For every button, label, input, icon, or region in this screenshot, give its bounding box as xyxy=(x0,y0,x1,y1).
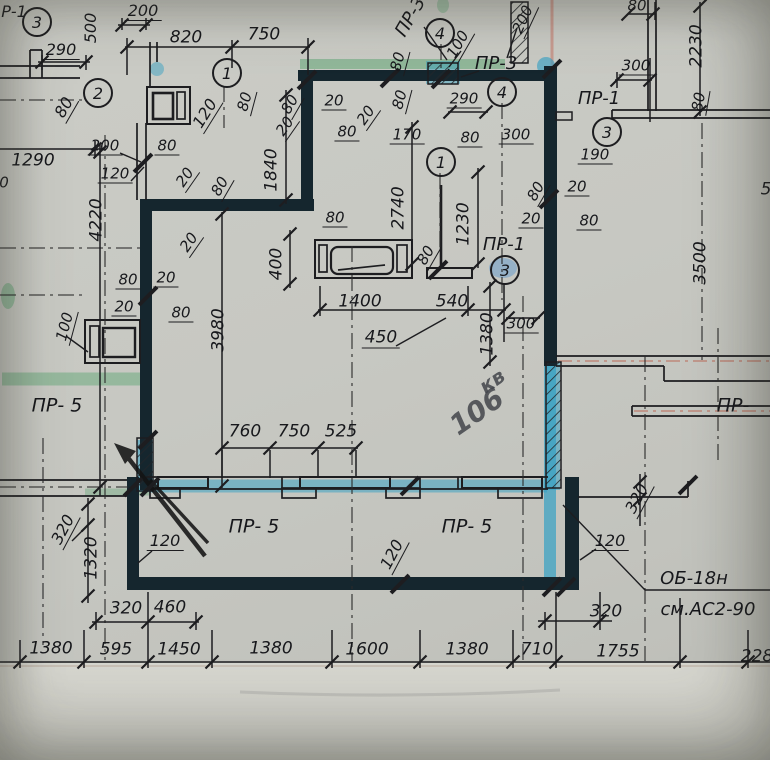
dim-label: 290 xyxy=(43,42,80,60)
dim-label: 525 xyxy=(325,424,357,441)
dim-label: 1380 xyxy=(29,641,72,658)
dim-label: 760 xyxy=(229,424,261,441)
dim-label: 1840 xyxy=(264,148,281,191)
dim-label: 1380 xyxy=(249,641,292,658)
dim-label: 80 xyxy=(168,306,193,323)
dim-label: ПР- 5 xyxy=(229,518,280,537)
dim-label: 1230 xyxy=(456,202,473,245)
dim-label: 170 xyxy=(390,128,425,145)
dim-label: ПР- xyxy=(717,397,750,416)
axis-circle: 4 xyxy=(425,18,455,48)
dim-label: 2740 xyxy=(391,186,408,229)
dim-label: 120 xyxy=(147,533,184,551)
dim-label: 20 xyxy=(111,300,136,317)
dim-label: 1755 xyxy=(596,644,639,661)
dim-label: 200 xyxy=(125,3,162,21)
dim-label: 20 xyxy=(518,212,543,229)
dim-label: 540 xyxy=(436,294,468,311)
dim-label: ПР-3 xyxy=(475,55,517,73)
dim-label: ПР- 5 xyxy=(442,518,493,537)
dim-label: 228 xyxy=(741,649,770,666)
dim-label: 300 xyxy=(504,317,539,334)
blueprint-sheet: Р-12905002008207508012012900200120804220… xyxy=(0,0,770,760)
dim-label: 80 xyxy=(576,214,601,231)
dim-label: 320 xyxy=(110,601,142,618)
dim-label: 3500 xyxy=(693,241,710,284)
dim-label: 1380 xyxy=(480,312,497,355)
dim-label: 1400 xyxy=(338,294,381,311)
dim-label: см.АС2-90 xyxy=(661,601,756,619)
dim-label: 290 xyxy=(447,92,482,109)
axis-circle: 3 xyxy=(22,7,52,37)
axis-circle: 1 xyxy=(426,147,456,177)
dim-label: 80 xyxy=(154,139,179,156)
dim-label: 710 xyxy=(521,642,553,659)
dim-label: 750 xyxy=(278,424,310,441)
dim-label: ОБ-18н xyxy=(660,570,728,588)
dim-label: 500 xyxy=(83,13,99,44)
dim-label: 1600 xyxy=(345,642,388,659)
dim-label: 450 xyxy=(362,330,400,349)
dim-label: 80 xyxy=(115,273,140,290)
dim-label: ПР-1 xyxy=(483,236,525,254)
dim-label: 20 xyxy=(153,271,178,288)
axis-circle: 3 xyxy=(592,117,622,147)
dim-label: 1450 xyxy=(157,642,200,659)
dim-label: 1320 xyxy=(84,536,101,579)
dim-label: 400 xyxy=(269,248,286,280)
dim-label: 2230 xyxy=(689,24,706,67)
dim-label: 190 xyxy=(578,148,613,165)
dim-label: 1290 xyxy=(11,153,54,170)
dim-label: 80 xyxy=(322,211,347,228)
axis-circle: 3 xyxy=(490,255,520,285)
dim-label: 200 xyxy=(88,139,123,156)
dim-label: 1380 xyxy=(445,642,488,659)
dim-label: 20 xyxy=(564,180,589,197)
dim-label: 300 xyxy=(499,128,534,145)
dim-label: 3980 xyxy=(211,308,228,351)
axis-circle: 2 xyxy=(83,78,113,108)
dim-label: 595 xyxy=(100,642,132,659)
axis-circle: 1 xyxy=(212,58,242,88)
dim-label: 80 xyxy=(457,131,482,148)
dim-label: ПР-1 xyxy=(578,90,620,108)
dim-label: ПР- 5 xyxy=(32,397,83,416)
dim-label: 80 xyxy=(334,125,359,142)
dim-label: 120 xyxy=(98,167,133,184)
dim-label: 0 xyxy=(0,176,9,191)
dim-label: 20 xyxy=(321,94,346,111)
dim-label: 750 xyxy=(248,27,280,44)
dim-label: 300 xyxy=(619,59,654,76)
dim-label: 460 xyxy=(154,600,186,617)
dim-label: 4220 xyxy=(89,198,106,241)
dim-label: 80 xyxy=(627,0,646,14)
dim-label: 120 xyxy=(592,533,629,551)
axis-circle: 4 xyxy=(487,77,517,107)
dim-label: 820 xyxy=(170,30,202,47)
dim-label: 5 xyxy=(761,182,770,199)
dim-label: 320 xyxy=(590,604,622,621)
